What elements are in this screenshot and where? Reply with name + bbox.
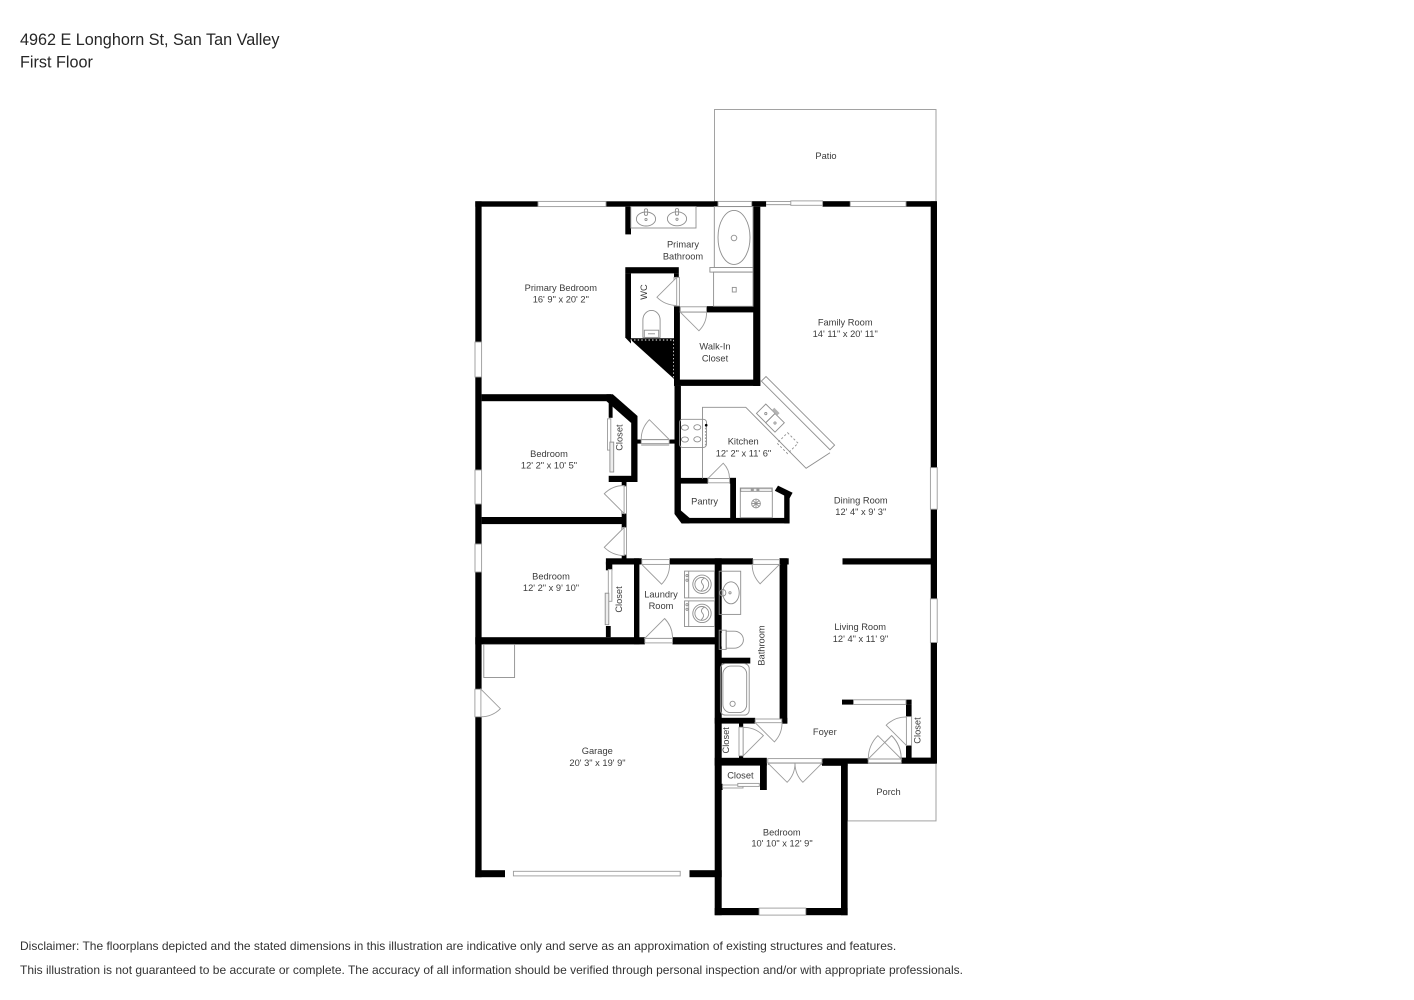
svg-text:Garage: Garage <box>582 746 613 756</box>
svg-text:Primary Bedroom: Primary Bedroom <box>525 283 598 293</box>
svg-text:16' 9" x 20' 2": 16' 9" x 20' 2" <box>533 295 589 305</box>
svg-text:Bathroom: Bathroom <box>757 625 767 666</box>
svg-text:Bedroom: Bedroom <box>530 449 568 459</box>
svg-text:10' 10" x 12' 9": 10' 10" x 12' 9" <box>751 839 812 849</box>
svg-text:Family Room: Family Room <box>818 318 873 328</box>
svg-text:Dining Room: Dining Room <box>834 496 888 506</box>
svg-text:This illustration is not guara: This illustration is not guaranteed to b… <box>20 963 963 977</box>
svg-text:Laundry: Laundry <box>644 590 678 600</box>
svg-text:Closet: Closet <box>727 770 754 780</box>
svg-text:Disclaimer: The floorplans dep: Disclaimer: The floorplans depicted and … <box>20 939 896 953</box>
svg-text:Room: Room <box>649 601 674 611</box>
svg-text:4962 E Longhorn St, San Tan Va: 4962 E Longhorn St, San Tan Valley <box>20 31 280 49</box>
svg-text:Walk-In: Walk-In <box>699 342 730 352</box>
svg-text:12' 4" x 11' 9": 12' 4" x 11' 9" <box>833 634 888 644</box>
svg-text:Closet: Closet <box>702 354 729 364</box>
svg-text:Closet: Closet <box>614 424 624 451</box>
svg-text:14' 11" x 20' 11": 14' 11" x 20' 11" <box>813 329 878 339</box>
svg-text:12' 2" x 9' 10": 12' 2" x 9' 10" <box>523 583 579 593</box>
svg-text:Primary: Primary <box>667 240 699 250</box>
svg-text:Living Room: Living Room <box>834 622 886 632</box>
svg-text:Foyer: Foyer <box>813 727 837 737</box>
svg-text:Bedroom: Bedroom <box>763 828 801 838</box>
svg-text:WC: WC <box>639 284 649 300</box>
svg-text:Closet: Closet <box>913 717 923 744</box>
svg-text:12' 2" x 10' 5": 12' 2" x 10' 5" <box>521 461 577 471</box>
svg-text:Kitchen: Kitchen <box>728 437 759 447</box>
svg-text:Patio: Patio <box>815 151 836 161</box>
svg-text:12' 2" x 11' 6": 12' 2" x 11' 6" <box>716 449 771 459</box>
svg-text:Porch: Porch <box>876 787 900 797</box>
svg-text:Bedroom: Bedroom <box>532 571 570 581</box>
svg-text:First Floor: First Floor <box>20 54 93 72</box>
svg-text:Pantry: Pantry <box>691 496 718 506</box>
svg-text:Closet: Closet <box>614 586 624 613</box>
svg-text:Closet: Closet <box>721 727 731 754</box>
svg-text:Bathroom: Bathroom <box>663 252 704 262</box>
svg-text:20' 3" x 19' 9": 20' 3" x 19' 9" <box>569 758 625 768</box>
svg-text:12' 4" x 9' 3": 12' 4" x 9' 3" <box>835 507 886 517</box>
